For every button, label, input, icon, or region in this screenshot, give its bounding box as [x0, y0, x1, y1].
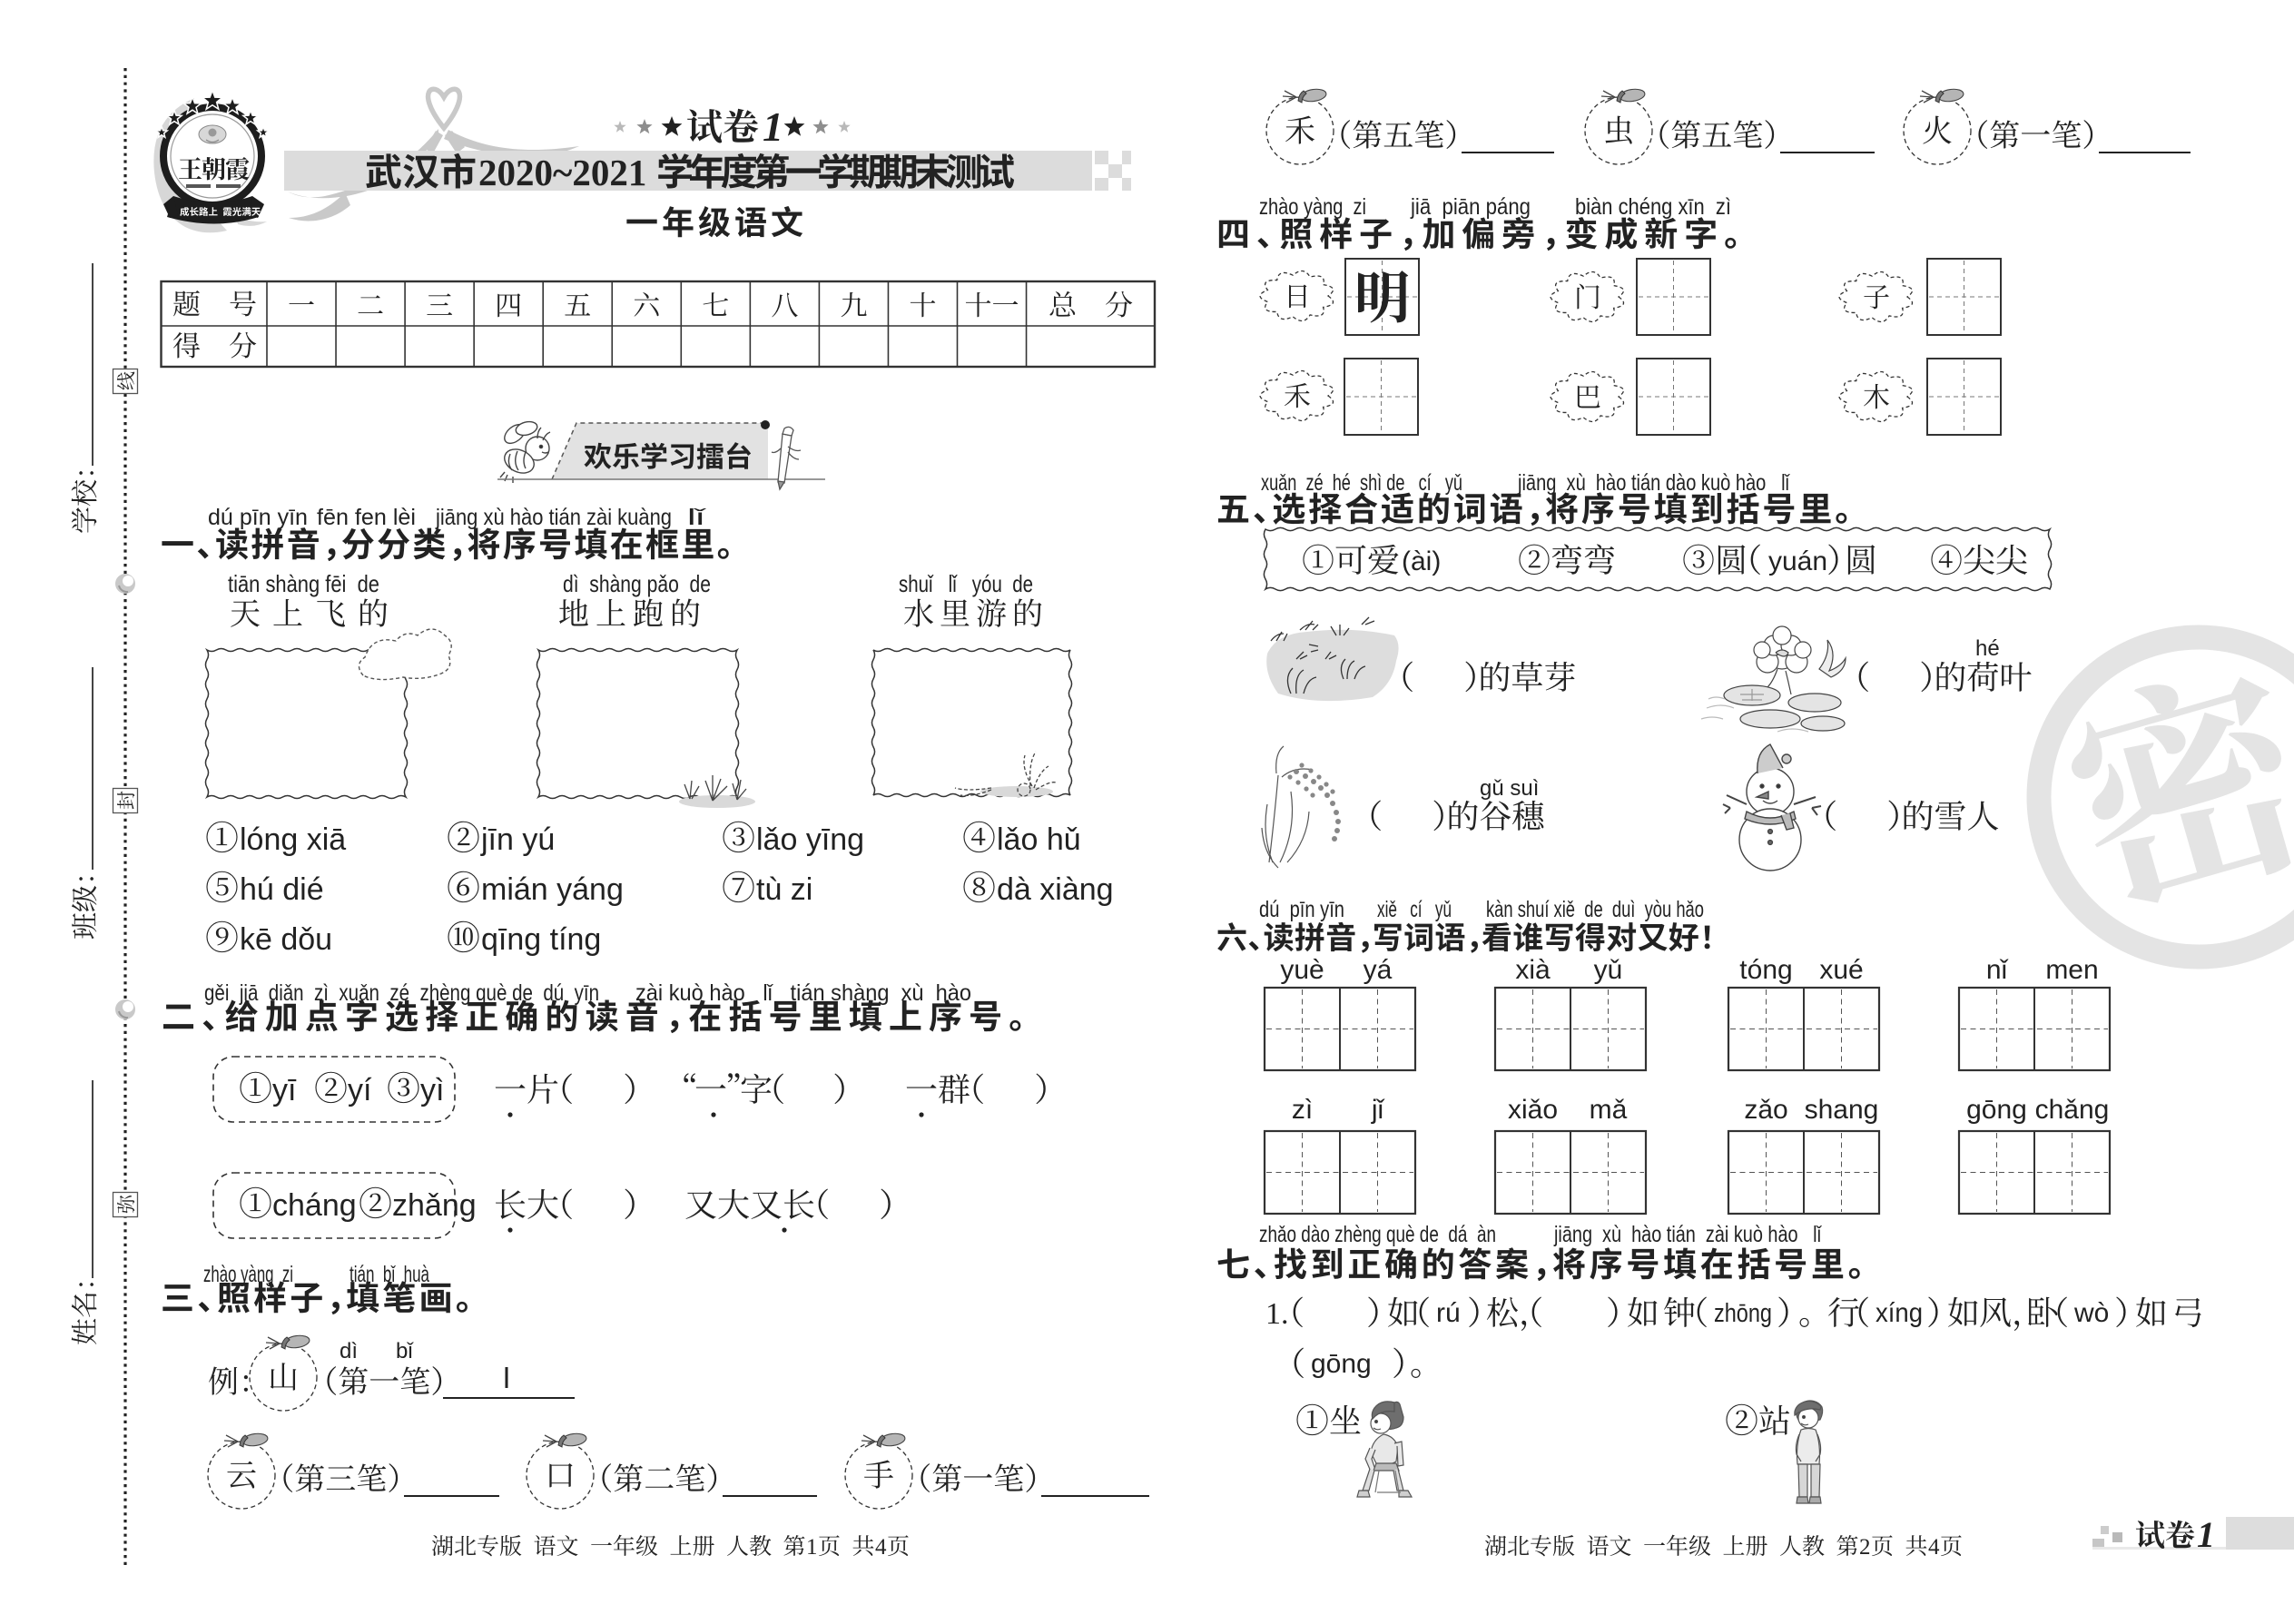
svg-text:yuán: yuán: [1768, 546, 1827, 576]
svg-text:dì: dì: [340, 1339, 358, 1363]
svg-text:kē dǒu: kē dǒu: [240, 922, 332, 957]
svg-text:dú pīn yīn: dú pīn yīn: [208, 505, 308, 530]
svg-text:bǐ: bǐ: [396, 1339, 414, 1363]
svg-text:mǎ: mǎ: [1590, 1095, 1628, 1125]
svg-text:xià: xià: [1515, 955, 1551, 985]
svg-text:biàn chéng xīn zì: biàn chéng xīn zì: [1575, 194, 1731, 220]
svg-text:zài kuò hào lǐ tián shàng: zài kuò hào lǐ tián shàng xù hào: [635, 980, 971, 1006]
svg-text:yuè: yuè: [1280, 955, 1324, 985]
svg-text:yī: yī: [272, 1073, 297, 1107]
svg-text:zhǎo dào zhèng què de dá àn: zhǎo dào zhèng què de dá àn: [1259, 1222, 1496, 1247]
svg-text:jǐ: jǐ: [1371, 1095, 1385, 1125]
svg-text:mián yáng: mián yáng: [481, 872, 624, 907]
svg-text:tù zi: tù zi: [756, 872, 812, 907]
svg-text:zǎo: zǎo: [1744, 1095, 1787, 1125]
svg-text:gōng: gōng: [1311, 1349, 1372, 1379]
svg-text:xuǎn zé hé shì de cí yǔ: xuǎn zé hé shì de cí yǔ: [1261, 470, 1462, 496]
svg-text:2020~2021: 2020~2021: [478, 152, 646, 193]
svg-text:shuǐ lǐ yóu de: shuǐ lǐ yóu de: [899, 570, 1033, 597]
svg-text:1: 1: [2197, 1514, 2215, 1555]
svg-text:men: men: [2045, 955, 2098, 985]
svg-text:lóng xiā: lóng xiā: [240, 822, 346, 857]
svg-text:1: 1: [806, 1535, 818, 1560]
svg-text:rú: rú: [1436, 1298, 1461, 1328]
svg-text:lǐ: lǐ: [687, 505, 706, 530]
svg-text:yǔ: yǔ: [1594, 955, 1623, 985]
svg-text:jiāng xù hào tián zài kuàng: jiāng xù hào tián zài kuàng: [435, 505, 672, 530]
svg-text:zhào yàng zi: zhào yàng zi: [1259, 194, 1366, 220]
svg-text:xiě cí yǔ: xiě cí yǔ: [1377, 897, 1452, 922]
svg-text:dì shàng pǎo de: dì shàng pǎo de: [563, 570, 711, 597]
svg-text:dú pīn yīn: dú pīn yīn: [1259, 897, 1344, 922]
svg-text:qīng tíng: qīng tíng: [481, 922, 601, 957]
svg-text:xiǎo: xiǎo: [1508, 1095, 1558, 1125]
svg-text:shang: shang: [1805, 1095, 1879, 1125]
svg-text:lǎo yīng: lǎo yīng: [756, 822, 864, 857]
svg-text:hé: hé: [1975, 636, 2000, 661]
svg-text:1: 1: [763, 103, 783, 150]
svg-text:jīn yú: jīn yú: [480, 822, 555, 857]
svg-text:chǎng: chǎng: [2035, 1095, 2110, 1125]
svg-text:jiāng xù hào tián dào kuò hà: jiāng xù hào tián dào kuò hào lǐ: [1517, 470, 1790, 496]
svg-text:zhōng: zhōng: [1714, 1299, 1772, 1328]
svg-text:4: 4: [1928, 1535, 1940, 1560]
svg-text:zì: zì: [1292, 1095, 1313, 1125]
svg-text:xué: xué: [1819, 955, 1863, 985]
svg-text:jiā piān páng: jiā piān páng: [1410, 194, 1531, 220]
svg-text:hú dié: hú dié: [240, 872, 324, 907]
svg-text:jiāng xù hào tián zài kuò h: jiāng xù hào tián zài kuò hào lǐ: [1553, 1222, 1822, 1247]
svg-text:zhǎng: zhǎng: [392, 1188, 477, 1223]
svg-text:fēn fen lèi: fēn fen lèi: [317, 505, 416, 530]
svg-text:tóng: tóng: [1739, 955, 1792, 985]
svg-text:nǐ: nǐ: [1986, 955, 2009, 985]
svg-text:cháng: cháng: [272, 1188, 357, 1223]
svg-text:kàn shuí xiě de duì yòu hǎo: kàn shuí xiě de duì yòu hǎo: [1486, 897, 1704, 922]
svg-text:tiān shàng fēi de: tiān shàng fēi de: [228, 570, 379, 597]
svg-text:yì: yì: [420, 1073, 444, 1107]
svg-text:4: 4: [875, 1535, 887, 1560]
svg-text:2: 2: [1859, 1535, 1871, 1560]
svg-text:1.: 1.: [1265, 1297, 1289, 1331]
svg-text:wò: wò: [2073, 1298, 2109, 1328]
svg-text:(ài): (ài): [1402, 546, 1441, 576]
svg-text:lǎo hǔ: lǎo hǔ: [997, 822, 1081, 857]
svg-text:gōng: gōng: [1966, 1095, 2027, 1125]
svg-text:dà xiàng: dà xiàng: [997, 872, 1114, 907]
svg-text:xíng: xíng: [1876, 1298, 1923, 1328]
svg-text:yá: yá: [1364, 955, 1393, 985]
svg-text:gǔ suì: gǔ suì: [1480, 776, 1539, 801]
svg-text:yí: yí: [348, 1073, 372, 1107]
